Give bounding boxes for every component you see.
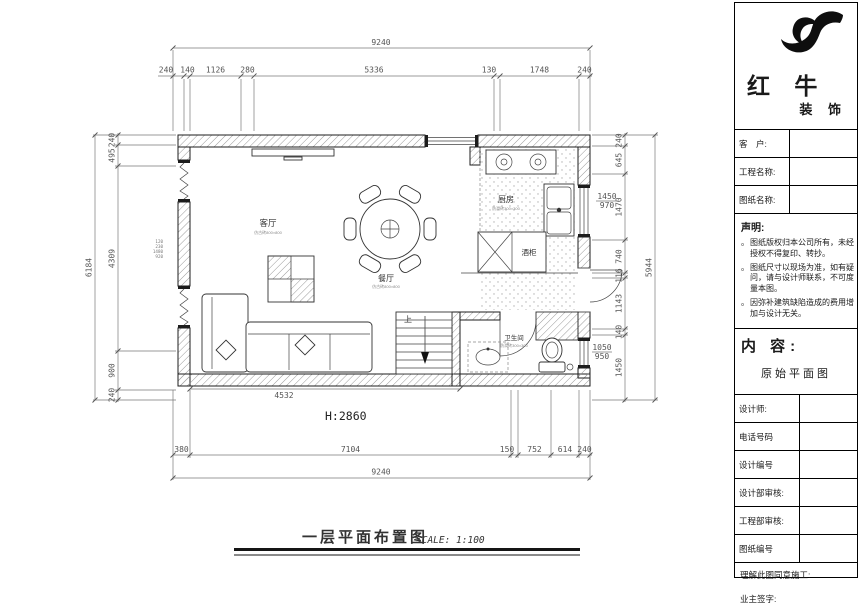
room-label-dining: 餐厅 [378,274,394,283]
field-row-drawing-name: 图纸名称: [735,186,857,214]
field-row-project-name: 工程名称: [735,158,857,186]
dim-left-seg: 240 [108,133,117,148]
dim-right-seg: 1143 [615,294,624,313]
brand-logo-box: 红 牛 装 饰 [735,3,857,130]
field-value [800,507,857,534]
statement-heading: 声明: [741,219,854,234]
signature-owner: 业主签字: [740,593,853,605]
wine-cabinet: 酒柜 [478,232,546,272]
field-row-customer: 客 户: [735,130,857,158]
drawing-title: 一层平面布置图 SCALE: 1:100 [234,528,580,555]
field-label: 工程部审核: [735,507,800,534]
stairs: 上 [396,312,452,374]
drawing-area: 9240 240 140 1126 280 5336 130 1748 240 … [0,0,735,580]
dim-right: 240 645 1470 740 116 1143 140 1450 5944 [592,133,658,403]
dim-bottom-seg: 380 [174,445,189,454]
field-label: 图纸名称: [735,186,790,213]
field-value [790,130,857,157]
field-row-engineering-dept-review: 工程部审核: [735,507,857,535]
svg-text:950: 950 [595,352,610,361]
field-label: 设计部审核: [735,479,800,506]
content-section: 内 容: 原始平面图 [735,329,857,395]
field-value [790,158,857,185]
svg-text:1450: 1450 [597,192,616,201]
field-row-design-number: 设计编号 [735,451,857,479]
field-value [790,186,857,213]
stairs-up-label: 上 [404,315,412,324]
field-label: 图纸编号 [735,535,800,562]
dim-bottom-seg: 752 [527,445,542,454]
field-row-drawing-number: 图纸编号 [735,535,857,563]
field-value [800,395,857,422]
drawing-scale-text: SCALE: 1:100 [416,535,485,546]
dim-bottom-total: 9240 [371,468,390,477]
dim-left: 240 495 4309 900 240 6184 [85,133,177,403]
field-row-design-dept-review: 设计部审核: [735,479,857,507]
toilet-icon [539,338,565,372]
rug-checker [268,256,314,302]
tv-icon [252,149,334,160]
dim-left-total: 6184 [85,258,94,277]
dim-left-seg: 900 [108,363,117,378]
dim-right-seg: 740 [615,249,624,264]
drawing-title-text: 一层平面布置图 [302,528,428,546]
statement-item: 。 图纸版权归本公司所有，未经授权不得复印、转抄。 [741,238,854,260]
sofa [202,294,372,372]
field-row-designer: 设计师: [735,395,857,423]
field-value [800,535,857,562]
bullet-marker: 。 [741,238,750,260]
field-value [800,451,857,478]
dim-top-seg: 280 [240,66,255,75]
dim-top-seg: 240 [577,66,592,75]
dim-top-seg: 240 [159,66,174,75]
room-label-living: 客厅 [259,218,277,228]
field-label: 客 户: [735,130,790,157]
shaft [536,312,578,340]
content-heading: 内 容: [741,335,851,356]
dim-right-total: 5944 [645,258,654,277]
kitchen: 酒柜 厨房 防滑砖300×300 [461,148,578,310]
left-wall-stack-numbers: 120 230 1480 920 [153,239,164,259]
dim-bottom-seg: 614 [558,445,573,454]
dim-right-seg: 1450 [615,358,624,377]
room-sub-kitchen: 防滑砖300×300 [492,205,520,211]
sink-icon [544,184,574,236]
svg-text:1050: 1050 [592,343,611,352]
dim-left-seg: 240 [108,388,117,403]
statement-text: 图纸尺寸以现场为准，如有疑问，请与设计师联系，不可度量本图。 [750,263,854,295]
floorplan-svg: 9240 240 140 1126 280 5336 130 1748 240 … [0,0,735,580]
field-label: 设计师: [735,395,800,422]
room-sub-dining: 仿古砖800×800 [372,283,400,289]
dim-top-seg: 1126 [206,66,225,75]
field-value [800,423,857,450]
bullet-marker: 。 [741,263,750,295]
field-label: 设计编号 [735,451,800,478]
title-underline-thick [234,548,580,551]
room-label-bathroom: 卫生间 [504,333,524,342]
statement-item: 。 图纸尺寸以现场为准，如有疑问，请与设计师联系，不可度量本图。 [741,263,854,295]
floor-drain-icon [567,364,573,370]
dim-left-seg: 4309 [108,249,117,268]
statement-item: 。 因弥补建筑缺陷造成的费用增加与设计无关。 [741,298,854,320]
field-label: 工程名称: [735,158,790,185]
brand-name-sub: 装 饰 [799,99,847,118]
statement-text: 因弥补建筑缺陷造成的费用增加与设计无关。 [750,298,854,320]
brand-name-main: 红 牛 [747,67,826,101]
field-row-phone: 电话号码 [735,423,857,451]
signature-construction-consent: 理解此图同意施工: [740,569,853,581]
statement-section: 声明: 。 图纸版权归本公司所有，未经授权不得复印、转抄。 。 图纸尺寸以现场为… [735,214,857,329]
dim-bottom-seg: 7104 [341,445,360,454]
dim-bottom-seg: 150 [500,445,515,454]
dim-left-seg: 495 [108,148,117,163]
dim-bottom: 380 7104 150 752 614 240 9240 [171,390,593,481]
wine-cabinet-label: 酒柜 [522,247,537,257]
svg-text:970: 970 [600,201,615,210]
dim-top-seg: 1748 [530,66,549,75]
inner-dimension-4532: 4532 [188,387,463,401]
room-label-kitchen: 厨房 [498,194,514,204]
statement-text: 图纸版权归本公司所有，未经授权不得复印、转抄。 [750,238,854,260]
dim-right-seg: 240 [615,133,624,148]
room-sub-bathroom: 防滑砖300×300 [500,342,528,348]
dining-set [344,184,436,275]
room-sub-living: 仿古砖800×800 [254,229,282,235]
dim-top-seg: 140 [180,66,195,75]
field-value [800,479,857,506]
dim-top-seg: 5336 [364,66,383,75]
signature-section: 理解此图同意施工: 业主签字: [735,563,857,605]
svg-text:4532: 4532 [274,391,293,400]
stove-icon [486,150,556,174]
bath-window-size: 1050 950 [592,343,612,361]
dim-right-seg: 645 [615,153,624,168]
svg-text:920: 920 [155,254,163,259]
content-value: 原始平面图 [741,365,851,381]
bathroom: 卫生间 防滑砖300×300 [468,312,578,372]
dim-top-total: 9240 [371,38,390,47]
dim-right-seg: 140 [615,325,624,340]
dim-bottom-seg: 240 [577,445,592,454]
brand-logo-bull-icon [769,7,851,67]
dim-top: 9240 240 140 1126 280 5336 130 1748 240 [158,38,593,131]
field-label: 电话号码 [735,423,800,450]
dim-top-seg: 130 [482,66,497,75]
bullet-marker: 。 [741,298,750,320]
height-note: H:2860 [325,409,367,423]
title-block-panel: 红 牛 装 饰 客 户: 工程名称: 图纸名称: 声明: 。 图纸版权归本公司所… [734,2,858,578]
